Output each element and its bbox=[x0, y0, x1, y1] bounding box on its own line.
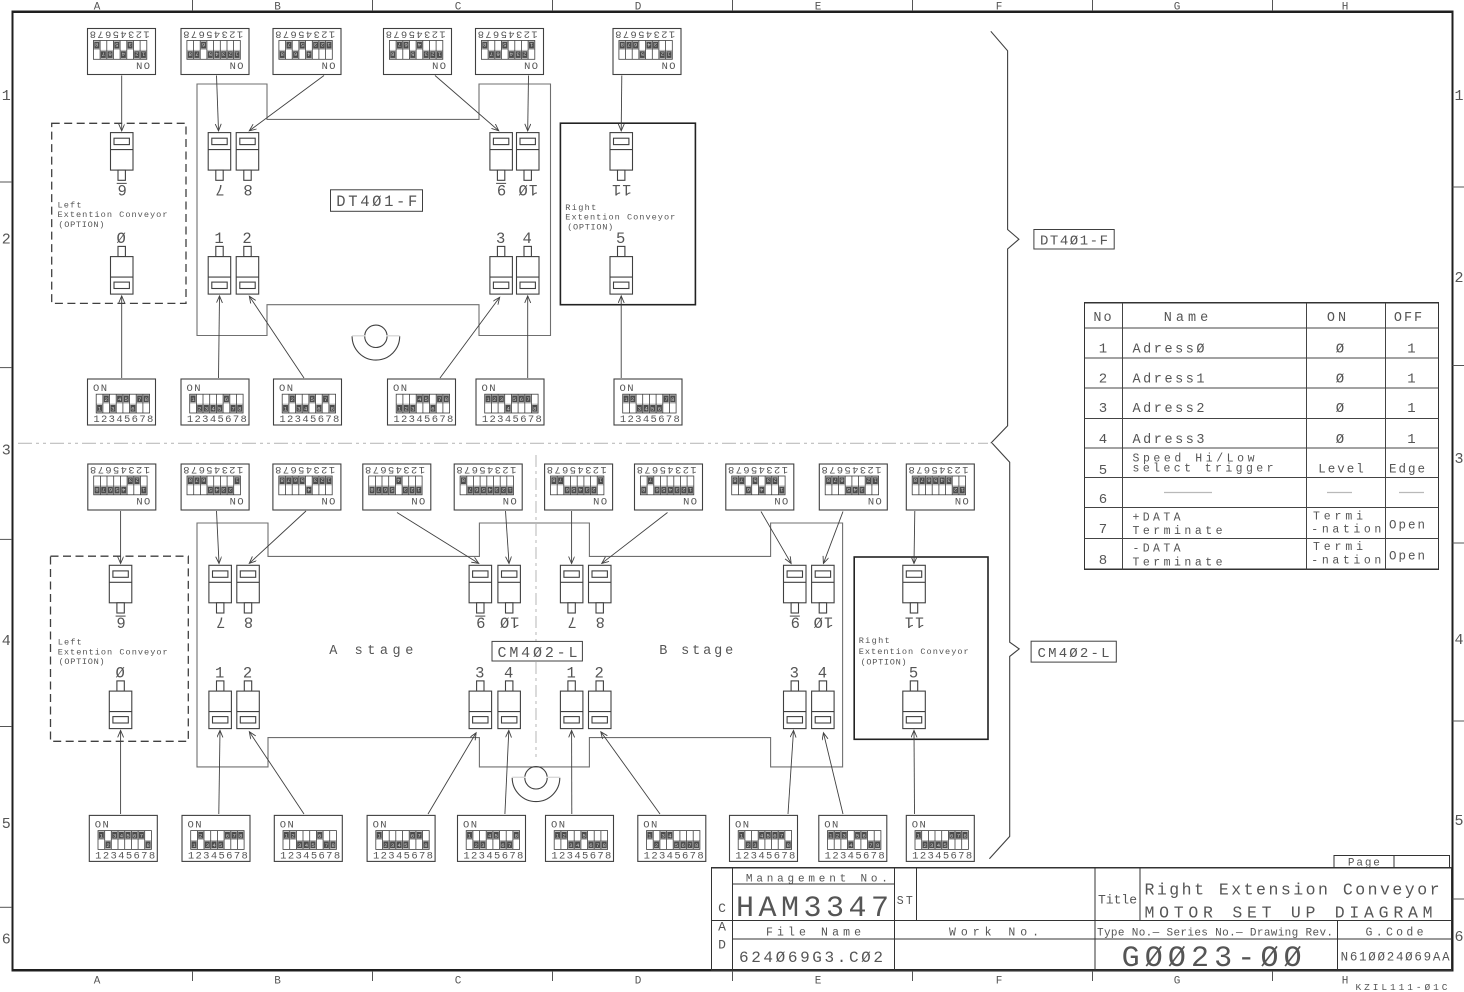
svg-text:2: 2 bbox=[431, 51, 434, 58]
svg-text:7: 7 bbox=[834, 477, 837, 484]
svg-text:12345678: 12345678 bbox=[373, 851, 433, 863]
svg-text:8: 8 bbox=[876, 842, 879, 849]
svg-text:N61ØØ24Ø69AA: N61ØØ24Ø69AA bbox=[1341, 951, 1450, 965]
svg-text:2: 2 bbox=[229, 486, 232, 493]
svg-text:5: 5 bbox=[115, 486, 118, 493]
svg-text:3: 3 bbox=[205, 405, 208, 412]
svg-text:7: 7 bbox=[780, 832, 783, 839]
svg-text:ON: ON bbox=[1327, 311, 1349, 326]
svg-text:8: 8 bbox=[242, 180, 252, 198]
svg-text:ON: ON bbox=[136, 59, 150, 71]
svg-text:Edge: Edge bbox=[1389, 463, 1427, 477]
svg-text:2: 2 bbox=[773, 477, 776, 484]
svg-text:8: 8 bbox=[424, 842, 427, 849]
svg-text:7: 7 bbox=[102, 51, 105, 58]
svg-text:ON: ON bbox=[643, 819, 657, 831]
svg-text:2: 2 bbox=[321, 477, 324, 484]
svg-text:12345678: 12345678 bbox=[615, 27, 675, 39]
svg-text:B: B bbox=[274, 2, 281, 14]
svg-text:3: 3 bbox=[753, 842, 756, 849]
svg-text:6: 6 bbox=[927, 477, 930, 484]
svg-text:Ø: Ø bbox=[1336, 371, 1344, 387]
svg-text:8: 8 bbox=[331, 405, 334, 412]
svg-text:2: 2 bbox=[291, 396, 294, 403]
svg-text:12345678: 12345678 bbox=[728, 463, 788, 475]
svg-text:8: 8 bbox=[331, 842, 334, 849]
svg-text:2: 2 bbox=[1099, 371, 1107, 387]
svg-text:3: 3 bbox=[654, 41, 657, 48]
svg-text:C: C bbox=[455, 976, 462, 988]
svg-text:3: 3 bbox=[496, 230, 506, 248]
svg-text:8: 8 bbox=[145, 396, 148, 403]
svg-text:12345678: 12345678 bbox=[280, 851, 340, 863]
svg-text:ON: ON bbox=[735, 819, 749, 831]
svg-text:2: 2 bbox=[242, 230, 252, 248]
svg-text:2: 2 bbox=[595, 665, 605, 683]
svg-text:5: 5 bbox=[662, 486, 665, 493]
svg-text:7: 7 bbox=[102, 486, 105, 493]
svg-text:7: 7 bbox=[596, 842, 599, 849]
svg-text:2: 2 bbox=[410, 486, 413, 493]
svg-text:6: 6 bbox=[566, 486, 569, 493]
svg-text:ON: ON bbox=[411, 494, 425, 506]
svg-text:6: 6 bbox=[520, 396, 523, 403]
svg-text:ON: ON bbox=[868, 494, 882, 506]
svg-text:Adress3: Adress3 bbox=[1133, 433, 1205, 448]
svg-text:12345678: 12345678 bbox=[482, 414, 542, 426]
svg-text:7: 7 bbox=[214, 180, 224, 198]
svg-text:12345678: 12345678 bbox=[912, 851, 972, 863]
svg-text:2: 2 bbox=[836, 832, 839, 839]
svg-text:ON: ON bbox=[230, 494, 244, 506]
svg-text:2: 2 bbox=[655, 842, 658, 849]
svg-text:ON: ON bbox=[93, 383, 107, 395]
svg-text:7: 7 bbox=[438, 396, 441, 403]
svg-text:2: 2 bbox=[321, 41, 324, 48]
svg-text:ON: ON bbox=[551, 819, 565, 831]
svg-text:DT4Ø1-F: DT4Ø1-F bbox=[336, 193, 417, 211]
svg-text:12345678: 12345678 bbox=[188, 851, 248, 863]
svg-text:2: 2 bbox=[502, 486, 505, 493]
svg-text:4: 4 bbox=[1454, 632, 1463, 649]
svg-text:ON: ON bbox=[187, 383, 201, 395]
svg-text:Adress1: Adress1 bbox=[1133, 372, 1205, 387]
svg-text:12345678: 12345678 bbox=[275, 27, 335, 39]
svg-text:H: H bbox=[1342, 976, 1349, 988]
svg-text:2: 2 bbox=[867, 477, 870, 484]
svg-text:3: 3 bbox=[111, 405, 114, 412]
svg-text:7: 7 bbox=[869, 842, 872, 849]
svg-text:1: 1 bbox=[1407, 341, 1415, 357]
svg-text:6: 6 bbox=[226, 832, 229, 839]
svg-text:6: 6 bbox=[475, 486, 478, 493]
svg-text:E: E bbox=[815, 2, 822, 14]
svg-text:5: 5 bbox=[311, 396, 314, 403]
svg-text:8: 8 bbox=[281, 51, 284, 58]
svg-text:7: 7 bbox=[559, 477, 562, 484]
svg-text:9: 9 bbox=[790, 613, 800, 631]
svg-text:12345678: 12345678 bbox=[821, 463, 881, 475]
svg-text:2: 2 bbox=[523, 51, 526, 58]
svg-text:ON: ON bbox=[279, 383, 293, 395]
svg-text:ON: ON bbox=[463, 819, 477, 831]
svg-text:8: 8 bbox=[391, 51, 394, 58]
svg-text:Adress2: Adress2 bbox=[1133, 402, 1205, 417]
svg-text:4: 4 bbox=[1099, 432, 1107, 448]
svg-text:2: 2 bbox=[106, 842, 109, 849]
svg-text:2: 2 bbox=[135, 51, 138, 58]
svg-text:5: 5 bbox=[2, 816, 11, 833]
svg-text:6: 6 bbox=[294, 51, 297, 58]
svg-text:2: 2 bbox=[631, 396, 634, 403]
svg-text:8: 8 bbox=[483, 41, 486, 48]
svg-text:12345678: 12345678 bbox=[620, 414, 680, 426]
svg-text:7: 7 bbox=[490, 51, 493, 58]
svg-text:5: 5 bbox=[219, 842, 222, 849]
svg-text:(OPTION): (OPTION) bbox=[59, 657, 105, 667]
svg-text:5: 5 bbox=[943, 842, 946, 849]
svg-text:12345678: 12345678 bbox=[825, 851, 885, 863]
svg-text:1: 1 bbox=[1407, 432, 1415, 448]
svg-text:6: 6 bbox=[863, 832, 866, 839]
svg-text:5: 5 bbox=[311, 842, 314, 849]
svg-text:5: 5 bbox=[513, 396, 516, 403]
svg-text:4: 4 bbox=[504, 665, 514, 683]
svg-text:7: 7 bbox=[649, 477, 652, 484]
svg-text:6: 6 bbox=[634, 41, 637, 48]
svg-text:8: 8 bbox=[189, 477, 192, 484]
svg-text:5: 5 bbox=[767, 832, 770, 839]
svg-text:No: No bbox=[1093, 311, 1113, 326]
svg-text:3: 3 bbox=[475, 665, 485, 683]
svg-text:6: 6 bbox=[202, 41, 205, 48]
svg-text:7: 7 bbox=[508, 842, 511, 849]
svg-text:12345678: 12345678 bbox=[478, 27, 538, 39]
svg-text:6: 6 bbox=[655, 486, 658, 493]
svg-text:Extention Conveyor: Extention Conveyor bbox=[58, 647, 168, 657]
svg-text:7: 7 bbox=[140, 832, 143, 839]
svg-text:5: 5 bbox=[503, 41, 506, 48]
svg-text:3: 3 bbox=[675, 486, 678, 493]
svg-text:Right: Right bbox=[859, 636, 890, 646]
svg-text:2: 2 bbox=[682, 486, 685, 493]
svg-text:5: 5 bbox=[934, 477, 937, 484]
svg-text:8: 8 bbox=[642, 486, 645, 493]
svg-text:Type No.— Series No.— Drawing: Type No.— Series No.— Drawing Rev. bbox=[1097, 927, 1333, 939]
svg-text:3: 3 bbox=[1099, 401, 1107, 417]
svg-text:1: 1 bbox=[1407, 371, 1415, 387]
svg-text:12345678: 12345678 bbox=[183, 27, 243, 39]
svg-text:8: 8 bbox=[238, 405, 241, 412]
svg-text:7: 7 bbox=[195, 477, 198, 484]
svg-text:ON: ON bbox=[824, 819, 838, 831]
svg-text:3: 3 bbox=[222, 486, 225, 493]
svg-text:8: 8 bbox=[515, 832, 518, 839]
svg-text:2: 2 bbox=[661, 51, 664, 58]
svg-text:12345678: 12345678 bbox=[93, 414, 153, 426]
svg-text:8: 8 bbox=[914, 477, 917, 484]
svg-text:6: 6 bbox=[108, 51, 111, 58]
svg-text:9: 9 bbox=[475, 613, 485, 631]
svg-text:Ø: Ø bbox=[117, 230, 127, 248]
svg-text:8: 8 bbox=[370, 486, 373, 493]
svg-text:F: F bbox=[996, 2, 1003, 14]
svg-text:C: C bbox=[718, 901, 726, 916]
svg-text:7: 7 bbox=[957, 832, 960, 839]
svg-text:3: 3 bbox=[500, 396, 503, 403]
svg-text:7: 7 bbox=[324, 396, 327, 403]
svg-text:5: 5 bbox=[301, 41, 304, 48]
svg-text:7: 7 bbox=[232, 832, 235, 839]
svg-text:ON: ON bbox=[373, 819, 387, 831]
svg-text:7: 7 bbox=[195, 51, 198, 58]
svg-text:7: 7 bbox=[468, 486, 471, 493]
svg-text:E: E bbox=[815, 976, 822, 988]
svg-text:8: 8 bbox=[445, 396, 448, 403]
svg-text:ON: ON bbox=[683, 494, 697, 506]
svg-text:12345678: 12345678 bbox=[735, 851, 795, 863]
svg-text:3: 3 bbox=[495, 486, 498, 493]
svg-text:3: 3 bbox=[843, 832, 846, 839]
svg-text:12345678: 12345678 bbox=[90, 27, 150, 39]
svg-text:ON: ON bbox=[95, 819, 109, 831]
svg-text:6: 6 bbox=[747, 486, 750, 493]
svg-text:Ø: Ø bbox=[1336, 401, 1344, 417]
svg-text:1: 1 bbox=[1099, 341, 1107, 357]
svg-text:12345678: 12345678 bbox=[187, 414, 247, 426]
svg-text:2: 2 bbox=[199, 832, 202, 839]
svg-text:3: 3 bbox=[860, 486, 863, 493]
svg-text:3: 3 bbox=[638, 405, 641, 412]
svg-text:6: 6 bbox=[225, 396, 228, 403]
svg-text:4: 4 bbox=[523, 230, 533, 248]
svg-text:D: D bbox=[635, 2, 642, 14]
svg-text:2: 2 bbox=[291, 832, 294, 839]
svg-text:1: 1 bbox=[1454, 88, 1463, 105]
svg-text:6: 6 bbox=[501, 842, 504, 849]
svg-text:1: 1 bbox=[2, 88, 11, 105]
svg-text:Extention Conveyor: Extention Conveyor bbox=[859, 647, 969, 657]
svg-text:1Ø: 1Ø bbox=[517, 180, 538, 198]
svg-text:5: 5 bbox=[209, 486, 212, 493]
svg-text:11: 11 bbox=[611, 180, 632, 198]
svg-text:3: 3 bbox=[481, 842, 484, 849]
svg-text:3: 3 bbox=[1454, 451, 1463, 468]
svg-text:C: C bbox=[455, 2, 462, 14]
svg-text:5: 5 bbox=[1099, 463, 1107, 479]
svg-text:Open: Open bbox=[1389, 519, 1427, 533]
svg-text:6: 6 bbox=[773, 832, 776, 839]
svg-text:3: 3 bbox=[113, 832, 116, 839]
svg-text:KZIL111-Ø1C: KZIL111-Ø1C bbox=[1356, 982, 1448, 992]
svg-text:6: 6 bbox=[384, 486, 387, 493]
svg-text:2: 2 bbox=[198, 405, 201, 412]
svg-text:(OPTION): (OPTION) bbox=[861, 657, 907, 667]
svg-text:12345678: 12345678 bbox=[456, 463, 516, 475]
svg-text:1Ø: 1Ø bbox=[813, 613, 834, 631]
svg-text:ON: ON bbox=[280, 819, 294, 831]
svg-text:8: 8 bbox=[827, 477, 830, 484]
svg-text:11: 11 bbox=[904, 613, 925, 631]
svg-text:3: 3 bbox=[297, 405, 300, 412]
svg-text:ON: ON bbox=[230, 59, 244, 71]
svg-text:3: 3 bbox=[298, 842, 301, 849]
svg-text:2: 2 bbox=[384, 842, 387, 849]
svg-text:6: 6 bbox=[658, 405, 661, 412]
svg-text:3: 3 bbox=[128, 41, 131, 48]
svg-text:ON: ON bbox=[188, 819, 202, 831]
svg-text:3: 3 bbox=[129, 477, 132, 484]
svg-text:2: 2 bbox=[923, 842, 926, 849]
svg-text:5: 5 bbox=[675, 842, 678, 849]
svg-text:1: 1 bbox=[1407, 401, 1415, 417]
svg-text:3: 3 bbox=[222, 51, 225, 58]
svg-text:12345678: 12345678 bbox=[275, 463, 335, 475]
svg-text:5: 5 bbox=[616, 230, 626, 248]
svg-text:Title: Title bbox=[1098, 892, 1137, 907]
svg-text:7: 7 bbox=[231, 405, 234, 412]
svg-text:12345678: 12345678 bbox=[908, 463, 968, 475]
svg-text:1: 1 bbox=[215, 665, 225, 683]
svg-text:5: 5 bbox=[404, 842, 407, 849]
svg-text:5: 5 bbox=[218, 405, 221, 412]
svg-text:12345678: 12345678 bbox=[386, 27, 446, 39]
svg-text:7: 7 bbox=[215, 613, 225, 631]
svg-text:9: 9 bbox=[496, 180, 506, 198]
svg-text:7: 7 bbox=[138, 396, 141, 403]
svg-text:3: 3 bbox=[206, 842, 209, 849]
svg-text:12345678: 12345678 bbox=[279, 414, 339, 426]
svg-text:ON: ON bbox=[620, 383, 634, 395]
svg-text:2: 2 bbox=[954, 486, 957, 493]
svg-text:4: 4 bbox=[2, 633, 11, 650]
svg-text:2: 2 bbox=[405, 405, 408, 412]
svg-text:Name: Name bbox=[1164, 311, 1212, 326]
svg-text:6: 6 bbox=[411, 832, 414, 839]
svg-text:ON: ON bbox=[322, 59, 336, 71]
svg-text:CM4Ø2-L: CM4Ø2-L bbox=[1038, 646, 1110, 662]
svg-text:6: 6 bbox=[317, 405, 320, 412]
svg-text:5: 5 bbox=[583, 832, 586, 839]
svg-text:5: 5 bbox=[651, 405, 654, 412]
svg-text:D: D bbox=[718, 938, 726, 953]
svg-text:8: 8 bbox=[95, 41, 98, 48]
svg-text:3: 3 bbox=[790, 665, 800, 683]
svg-text:2: 2 bbox=[475, 842, 478, 849]
svg-text:6: 6 bbox=[294, 477, 297, 484]
svg-text:CM4Ø2-L: CM4Ø2-L bbox=[498, 645, 578, 662]
svg-text:ON: ON bbox=[662, 59, 676, 71]
svg-text:3: 3 bbox=[662, 832, 665, 839]
svg-text:6: 6 bbox=[589, 842, 592, 849]
svg-text:6: 6 bbox=[950, 832, 953, 839]
svg-text:1: 1 bbox=[566, 665, 576, 683]
svg-text:Ø: Ø bbox=[115, 665, 125, 683]
svg-text:6: 6 bbox=[682, 842, 685, 849]
svg-text:2: 2 bbox=[1454, 270, 1463, 287]
svg-text:7: 7 bbox=[287, 477, 290, 484]
svg-text:12345678: 12345678 bbox=[393, 414, 453, 426]
svg-text:5: 5 bbox=[909, 665, 919, 683]
svg-text:5: 5 bbox=[847, 486, 850, 493]
svg-text:8: 8 bbox=[243, 613, 253, 631]
svg-text:7: 7 bbox=[1099, 522, 1107, 538]
svg-text:6: 6 bbox=[109, 486, 112, 493]
svg-text:6: 6 bbox=[1099, 492, 1107, 508]
svg-text:5: 5 bbox=[641, 51, 644, 58]
svg-text:Extention Conveyor: Extention Conveyor bbox=[58, 210, 168, 220]
svg-text:Ø: Ø bbox=[1336, 341, 1344, 357]
svg-text:7: 7 bbox=[566, 613, 576, 631]
svg-text:5: 5 bbox=[572, 486, 575, 493]
svg-text:8: 8 bbox=[695, 842, 698, 849]
svg-text:6: 6 bbox=[318, 832, 321, 839]
svg-text:Left: Left bbox=[58, 201, 82, 211]
svg-text:8: 8 bbox=[621, 41, 624, 48]
svg-text:ON: ON bbox=[593, 494, 607, 506]
svg-text:ON: ON bbox=[774, 494, 788, 506]
svg-text:3: 3 bbox=[947, 477, 950, 484]
svg-text:12345678: 12345678 bbox=[183, 463, 243, 475]
svg-text:3: 3 bbox=[767, 477, 770, 484]
svg-text:3: 3 bbox=[930, 842, 933, 849]
svg-text:6: 6 bbox=[1454, 929, 1463, 946]
svg-text:5: 5 bbox=[482, 486, 485, 493]
svg-text:ON: ON bbox=[321, 494, 335, 506]
svg-text:8: 8 bbox=[146, 842, 149, 849]
svg-text:OFF: OFF bbox=[1394, 311, 1424, 326]
svg-text:D: D bbox=[635, 976, 642, 988]
svg-text:(OPTION): (OPTION) bbox=[58, 220, 104, 230]
svg-text:7: 7 bbox=[740, 477, 743, 484]
svg-text:5: 5 bbox=[115, 41, 118, 48]
svg-text:(OPTION): (OPTION) bbox=[567, 222, 613, 232]
svg-text:12345678: 12345678 bbox=[547, 463, 607, 475]
svg-text:8: 8 bbox=[1099, 553, 1107, 569]
svg-text:1: 1 bbox=[214, 230, 224, 248]
svg-text:7: 7 bbox=[688, 842, 691, 849]
svg-text:7: 7 bbox=[627, 41, 630, 48]
svg-text:ON: ON bbox=[955, 494, 969, 506]
svg-text:8: 8 bbox=[787, 842, 790, 849]
svg-text:4: 4 bbox=[818, 665, 828, 683]
svg-text:ON: ON bbox=[393, 383, 407, 395]
svg-text:ON: ON bbox=[503, 494, 517, 506]
svg-text:3: 3 bbox=[314, 477, 317, 484]
svg-text:5: 5 bbox=[425, 396, 428, 403]
svg-text:A: A bbox=[718, 919, 726, 934]
svg-text:8: 8 bbox=[963, 832, 966, 839]
svg-text:8: 8 bbox=[239, 832, 242, 839]
svg-text:6: 6 bbox=[131, 405, 134, 412]
svg-text:7: 7 bbox=[664, 396, 667, 403]
svg-text:B: B bbox=[274, 976, 281, 988]
svg-text:12345678: 12345678 bbox=[463, 851, 523, 863]
svg-text:3: 3 bbox=[411, 405, 414, 412]
svg-text:2: 2 bbox=[243, 665, 253, 683]
svg-text:ON: ON bbox=[524, 59, 538, 71]
svg-text:8: 8 bbox=[671, 396, 674, 403]
svg-text:2: 2 bbox=[135, 477, 138, 484]
svg-text:6: 6 bbox=[202, 477, 205, 484]
svg-text:8: 8 bbox=[733, 477, 736, 484]
svg-text:6: 6 bbox=[117, 180, 127, 198]
svg-text:G: G bbox=[1174, 976, 1181, 988]
svg-text:12345678: 12345678 bbox=[551, 851, 611, 863]
svg-text:8: 8 bbox=[603, 842, 606, 849]
svg-text:7: 7 bbox=[287, 41, 290, 48]
svg-text:12345678: 12345678 bbox=[644, 851, 704, 863]
